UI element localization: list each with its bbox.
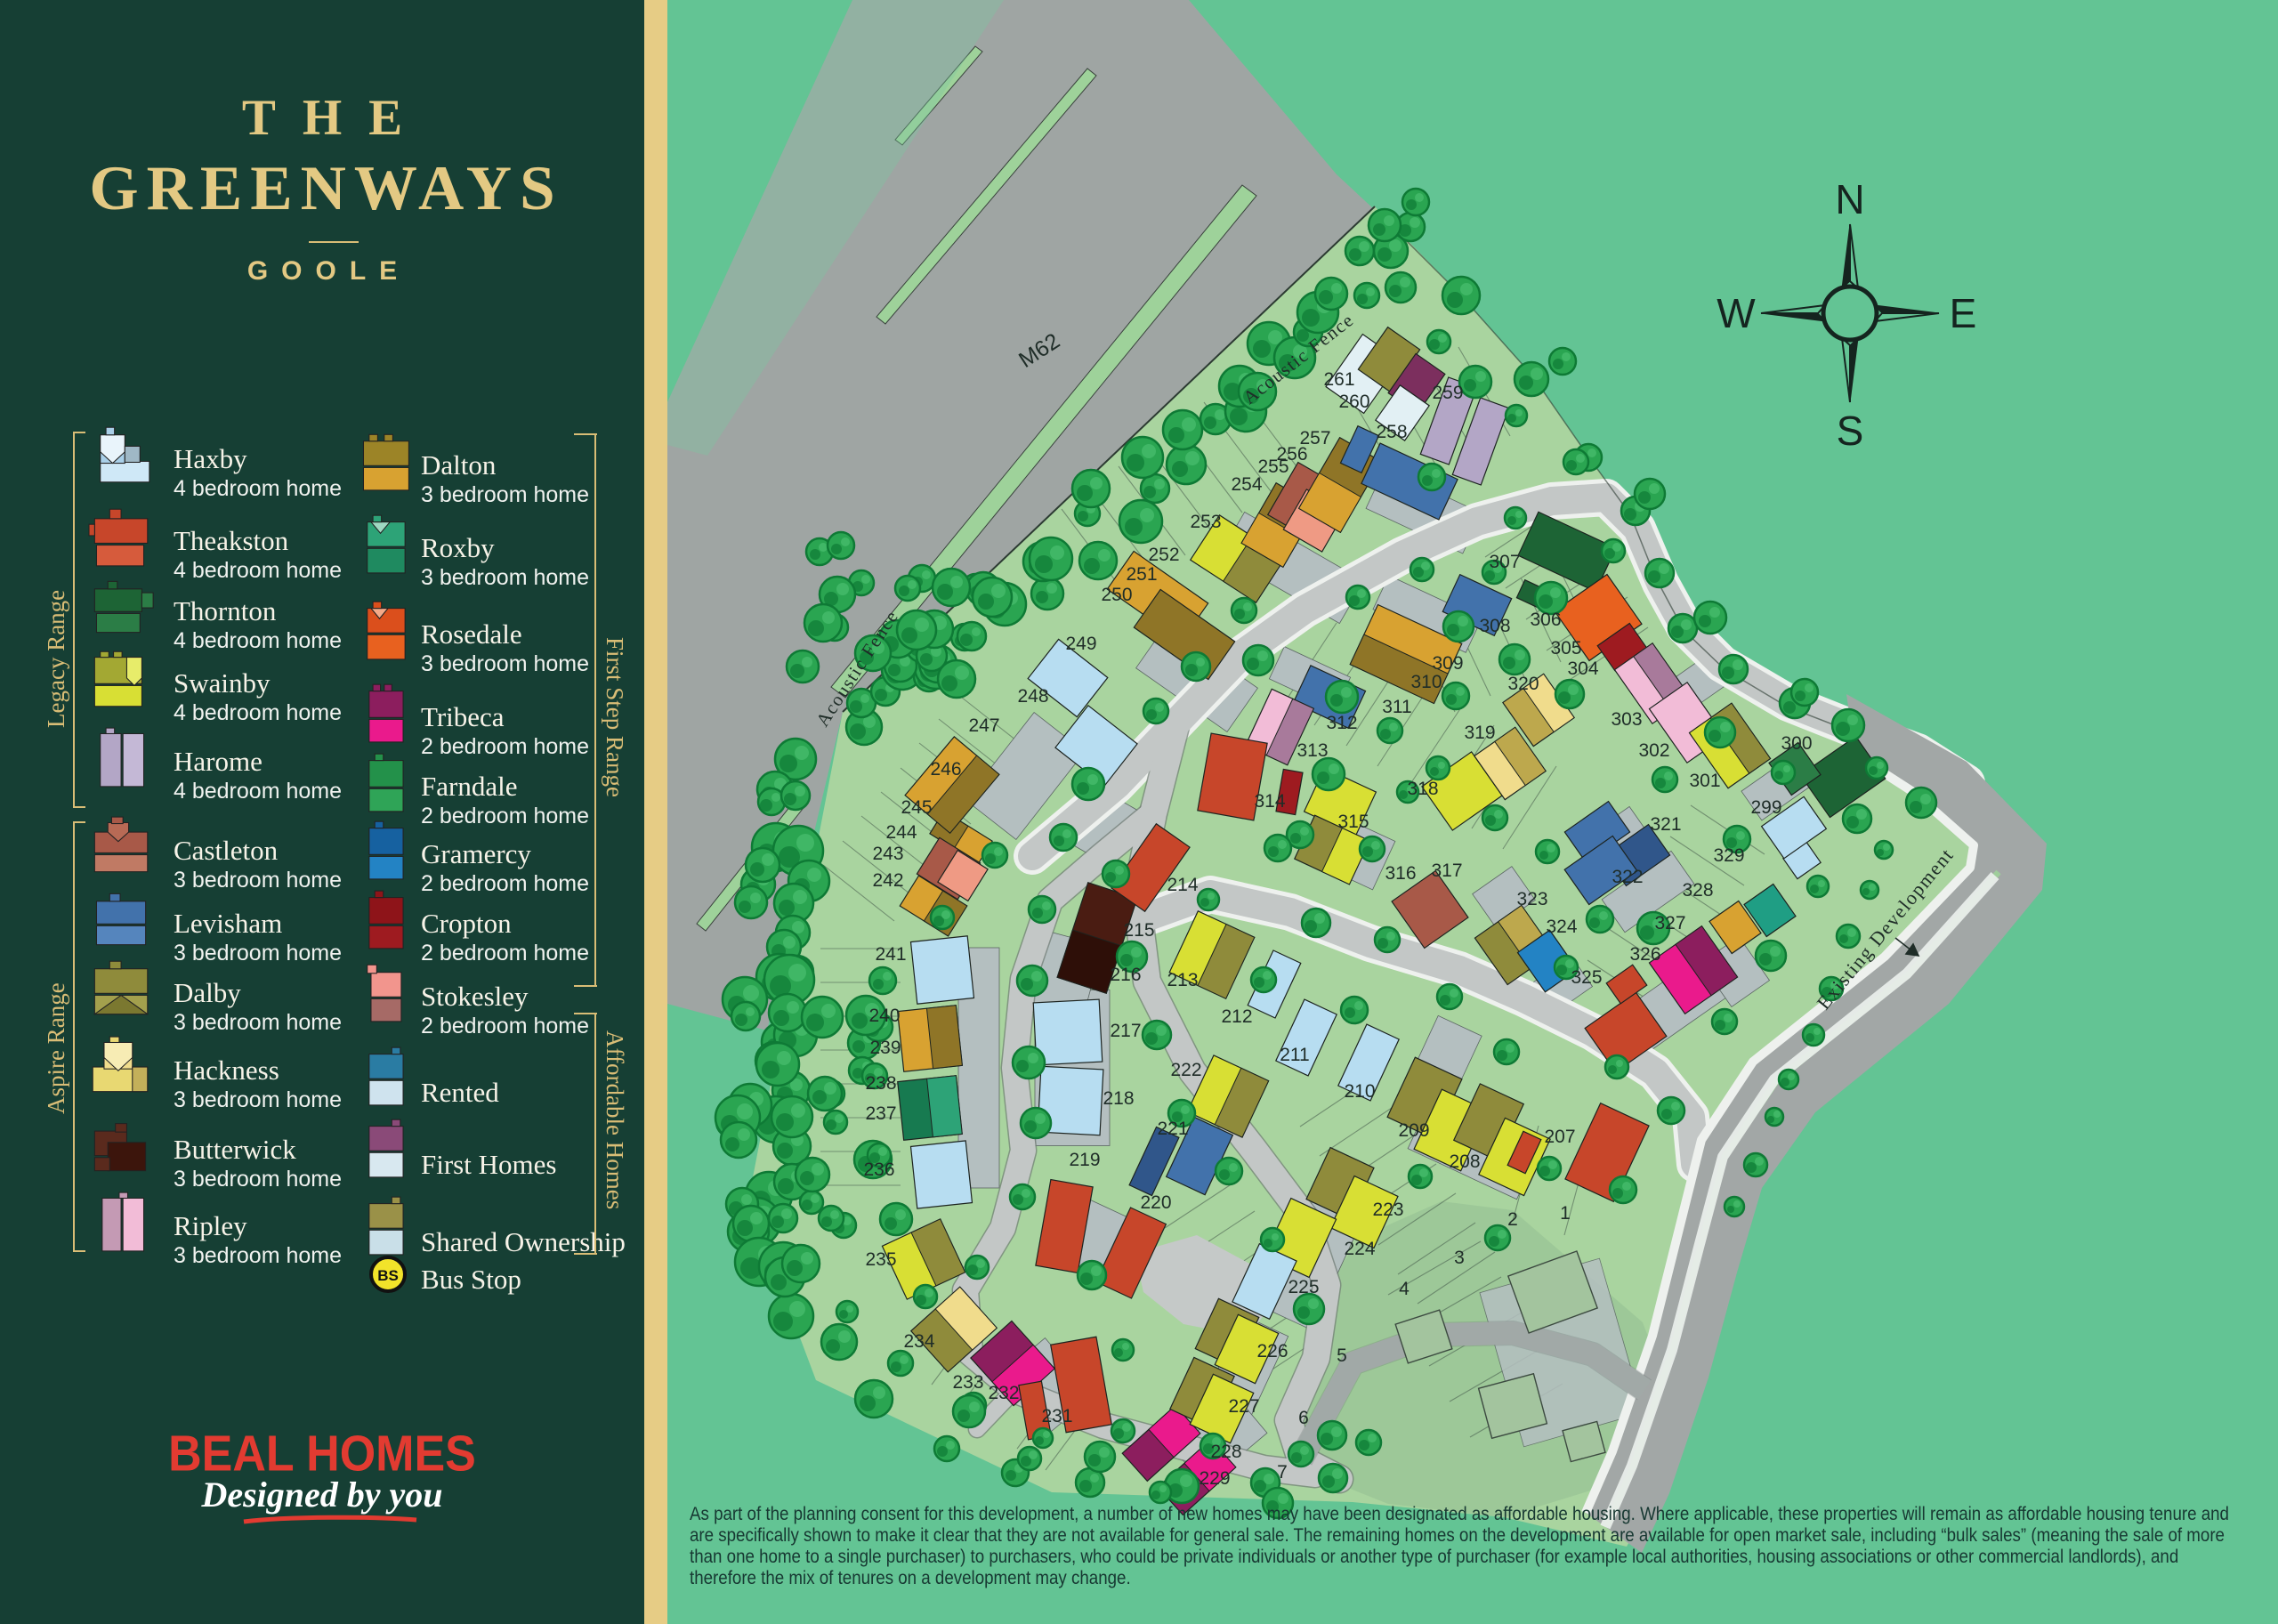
svg-text:209: 209	[1398, 1120, 1429, 1141]
svg-text:324: 324	[1546, 917, 1577, 937]
svg-text:3: 3	[1454, 1248, 1465, 1268]
svg-text:308: 308	[1479, 616, 1510, 636]
svg-text:210: 210	[1344, 1081, 1375, 1102]
svg-text:313: 313	[1297, 740, 1328, 761]
svg-text:5: 5	[1337, 1345, 1347, 1366]
svg-text:220: 220	[1140, 1192, 1171, 1213]
svg-text:325: 325	[1571, 967, 1602, 988]
svg-text:247: 247	[968, 715, 999, 736]
svg-text:309: 309	[1432, 653, 1463, 674]
svg-text:307: 307	[1489, 552, 1520, 572]
svg-text:253: 253	[1190, 512, 1221, 532]
svg-text:225: 225	[1288, 1277, 1319, 1297]
svg-text:237: 237	[865, 1103, 896, 1124]
svg-text:231: 231	[1041, 1406, 1072, 1426]
svg-text:6: 6	[1298, 1408, 1309, 1428]
svg-text:303: 303	[1611, 709, 1642, 730]
svg-text:222: 222	[1170, 1060, 1201, 1080]
svg-text:326: 326	[1629, 944, 1660, 965]
svg-text:E: E	[1950, 290, 1977, 336]
svg-text:310: 310	[1410, 672, 1442, 692]
svg-text:245: 245	[901, 797, 932, 818]
svg-text:255: 255	[1257, 456, 1288, 477]
svg-text:248: 248	[1017, 686, 1048, 707]
svg-text:213: 213	[1167, 970, 1198, 990]
svg-text:242: 242	[872, 870, 903, 891]
svg-text:302: 302	[1638, 740, 1669, 761]
svg-text:211: 211	[1280, 1045, 1309, 1065]
svg-text:4: 4	[1399, 1279, 1410, 1299]
svg-text:226: 226	[1256, 1341, 1288, 1361]
svg-text:320: 320	[1507, 674, 1539, 694]
svg-text:7: 7	[1277, 1462, 1288, 1483]
svg-text:259: 259	[1432, 383, 1463, 403]
svg-text:2: 2	[1507, 1209, 1518, 1230]
svg-text:217: 217	[1110, 1021, 1141, 1041]
svg-text:234: 234	[903, 1331, 934, 1352]
svg-text:315: 315	[1337, 812, 1369, 832]
svg-text:238: 238	[865, 1073, 896, 1094]
svg-text:305: 305	[1550, 638, 1581, 658]
svg-text:249: 249	[1065, 634, 1096, 654]
svg-text:329: 329	[1713, 845, 1744, 866]
svg-text:299: 299	[1750, 797, 1781, 818]
svg-text:215: 215	[1123, 920, 1154, 941]
svg-text:224: 224	[1344, 1239, 1375, 1259]
svg-text:251: 251	[1126, 564, 1157, 585]
svg-text:316: 316	[1385, 863, 1416, 884]
svg-text:236: 236	[863, 1159, 894, 1180]
svg-text:208: 208	[1449, 1151, 1480, 1172]
svg-text:254: 254	[1231, 474, 1262, 495]
svg-text:243: 243	[872, 844, 903, 864]
svg-text:241: 241	[875, 944, 906, 965]
svg-text:N: N	[1835, 176, 1864, 222]
svg-text:304: 304	[1567, 658, 1598, 679]
svg-text:218: 218	[1103, 1088, 1134, 1109]
svg-text:312: 312	[1326, 713, 1357, 733]
svg-text:258: 258	[1376, 422, 1407, 442]
svg-text:300: 300	[1781, 733, 1812, 754]
svg-text:219: 219	[1069, 1150, 1100, 1170]
svg-text:318: 318	[1407, 779, 1438, 799]
svg-text:216: 216	[1110, 965, 1141, 985]
svg-text:246: 246	[930, 759, 961, 780]
svg-text:227: 227	[1228, 1396, 1259, 1417]
svg-text:240: 240	[868, 1006, 900, 1026]
svg-text:321: 321	[1650, 814, 1681, 835]
svg-text:328: 328	[1682, 880, 1713, 901]
svg-text:327: 327	[1654, 913, 1685, 933]
svg-text:S: S	[1837, 408, 1864, 454]
svg-text:BS: BS	[377, 1267, 399, 1284]
svg-text:223: 223	[1372, 1200, 1403, 1220]
svg-text:214: 214	[1167, 875, 1198, 895]
svg-text:323: 323	[1516, 889, 1547, 909]
svg-text:207: 207	[1544, 1127, 1575, 1147]
svg-text:221: 221	[1157, 1119, 1188, 1139]
svg-text:314: 314	[1254, 791, 1285, 812]
svg-text:W: W	[1717, 290, 1756, 336]
svg-text:317: 317	[1431, 860, 1462, 881]
svg-text:322: 322	[1612, 867, 1643, 887]
svg-text:212: 212	[1221, 1006, 1252, 1027]
svg-text:261: 261	[1323, 369, 1354, 390]
svg-text:229: 229	[1199, 1468, 1230, 1489]
svg-text:260: 260	[1338, 392, 1369, 412]
svg-text:1: 1	[1560, 1203, 1571, 1224]
svg-text:306: 306	[1530, 610, 1561, 630]
svg-text:233: 233	[952, 1372, 983, 1393]
svg-text:301: 301	[1689, 771, 1720, 791]
svg-text:311: 311	[1382, 697, 1411, 717]
svg-text:235: 235	[865, 1249, 896, 1270]
svg-text:319: 319	[1464, 723, 1495, 743]
svg-text:244: 244	[885, 822, 917, 843]
svg-text:232: 232	[988, 1383, 1019, 1403]
svg-text:239: 239	[869, 1038, 901, 1058]
svg-text:250: 250	[1101, 585, 1132, 605]
svg-text:228: 228	[1210, 1442, 1241, 1462]
svg-text:252: 252	[1148, 545, 1179, 565]
